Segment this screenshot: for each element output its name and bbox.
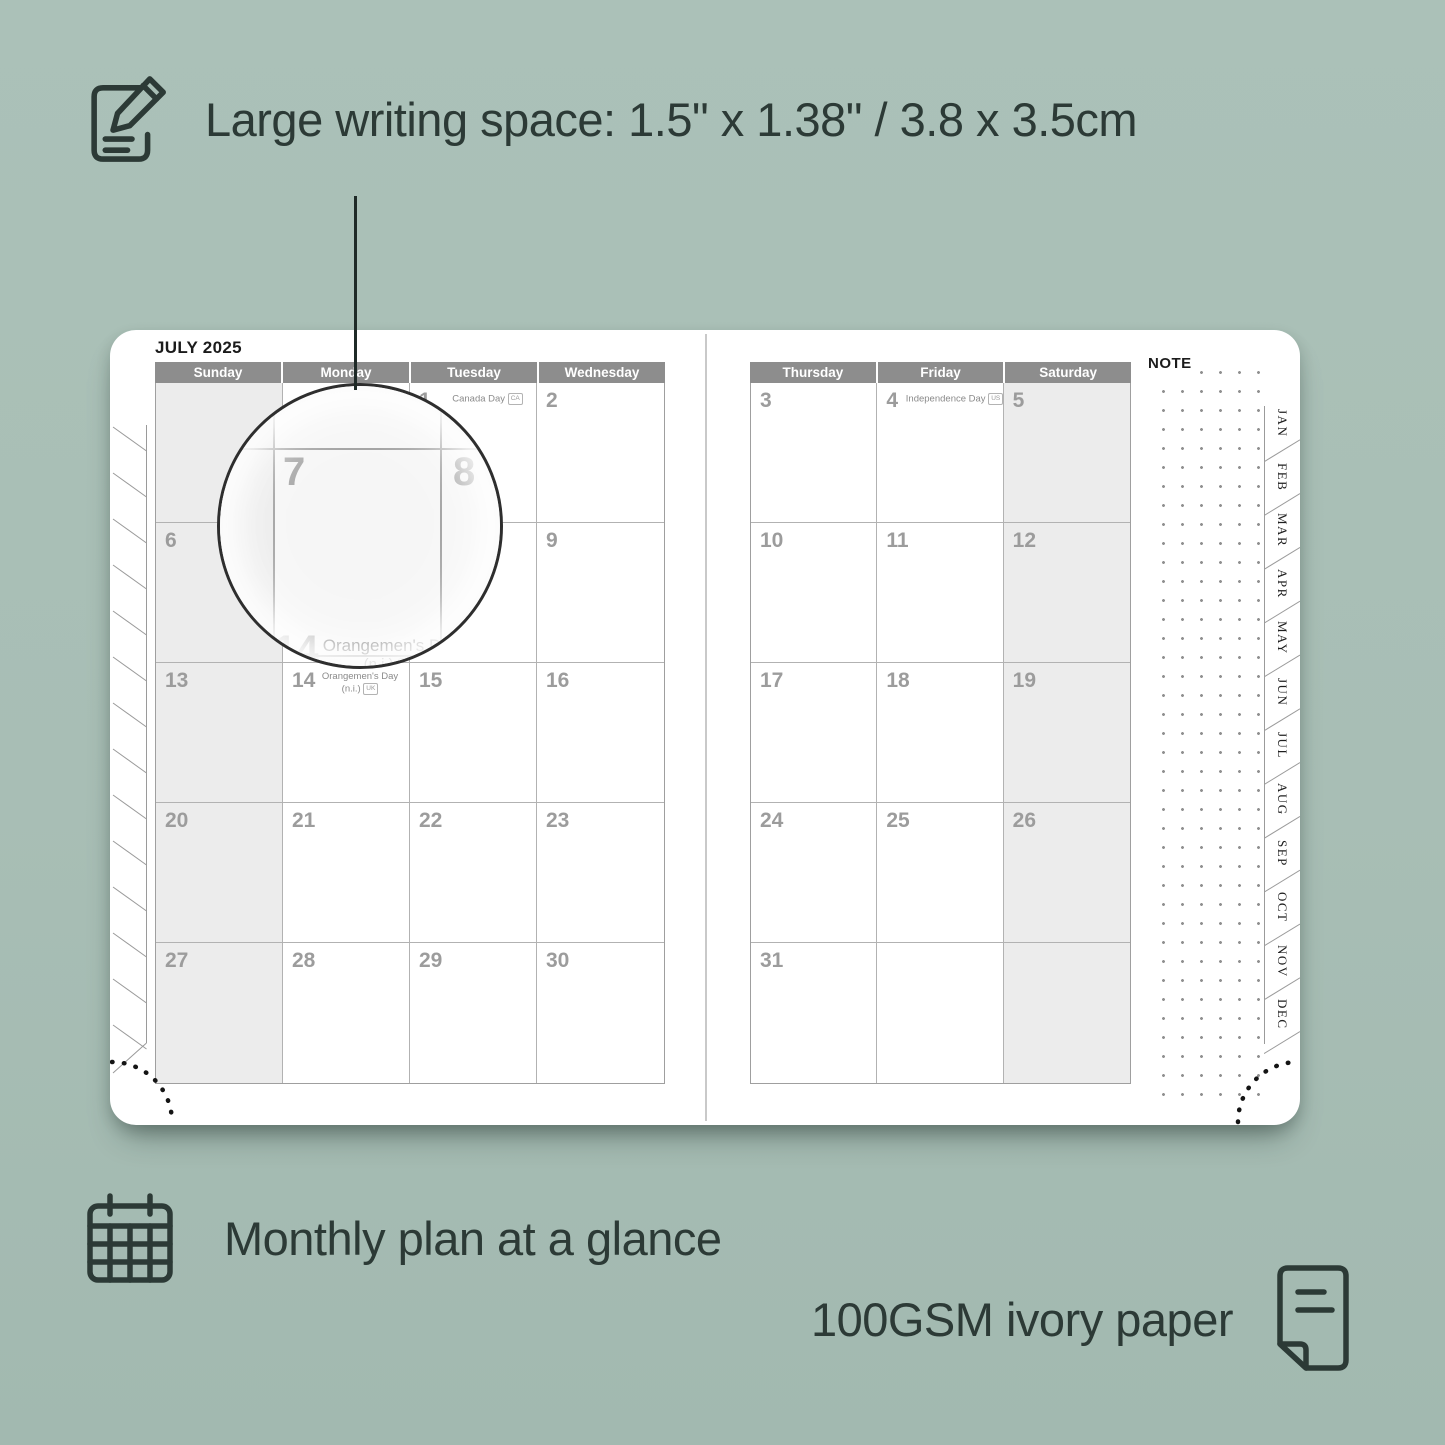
planner-product-image: Large writing space: 1.5" x 1.38" / 3.8 … [0,0,1445,1445]
calendar-cell: 23 [537,803,664,943]
calendar-cell: 29 [410,943,537,1083]
month-tab-jul: JUL [1264,719,1300,773]
spread-spine [705,334,707,1121]
calendar-cell: 30 [537,943,664,1083]
month-tab-dec: DEC [1264,988,1300,1042]
month-tab-oct: OCT [1264,880,1300,934]
paper-sheet-icon [1266,1262,1352,1374]
day-number: 13 [165,669,188,693]
month-tab-may: MAY [1264,611,1300,665]
day-number: 12 [1013,529,1036,553]
calendar-cell: 16 [537,663,664,803]
day-number: 15 [419,669,442,693]
month-tab-jan: JAN [1264,396,1300,450]
magnified-holiday-label: Orangemen's Day (n.i.) UK [310,635,472,669]
holiday-label: Orangemen's Day(n.i.) UK [313,671,407,696]
calendar-cell: 24 [751,803,877,943]
feature-writing-space: Large writing space: 1.5" x 1.38" / 3.8 … [83,70,1137,168]
country-badge: US [988,393,1003,405]
calendar-cell: 14Orangemen's Day(n.i.) UK [283,663,410,803]
month-tab-jun: JUN [1264,665,1300,719]
day-number: 3 [760,389,772,413]
calendar-cell: 4Independence Day US [877,383,1003,523]
magnified-weekend-column [220,386,273,666]
day-number: 26 [1013,809,1036,833]
notepad-pencil-icon [83,70,181,168]
day-number: 16 [546,669,569,693]
holiday-label: Independence Day US [909,393,999,405]
day-number: 5 [1013,389,1025,413]
day-number: 4 [886,389,898,413]
calendar-cell: 19 [1004,663,1130,803]
calendar-cell: 31 [751,943,877,1083]
magnified-grid-line [220,448,500,450]
day-number: 18 [886,669,909,693]
day-header: Monday [283,362,409,383]
month-tab-mar: MAR [1264,504,1300,558]
calendar-cell [1004,943,1130,1083]
callout-connector-line [354,196,357,390]
calendar-cell: 2 [537,383,664,523]
calendar-cell: 20 [156,803,283,943]
day-number: 29 [419,949,442,973]
calendar-cell: 27 [156,943,283,1083]
day-number: 28 [292,949,315,973]
month-title: JULY 2025 [155,338,242,358]
day-header: Friday [878,362,1004,383]
country-badge: UK [363,683,378,695]
calendar-cell: 15 [410,663,537,803]
day-number: 21 [292,809,315,833]
day-number: 31 [760,949,783,973]
day-number: 20 [165,809,188,833]
calendar-cell: 18 [877,663,1003,803]
day-header: Tuesday [411,362,537,383]
day-header: Sunday [155,362,281,383]
day-number: 22 [419,809,442,833]
feature-monthly-plan: Monthly plan at a glance [82,1190,722,1286]
feature-monthly-plan-label: Monthly plan at a glance [224,1211,722,1266]
calendar-cell: 28 [283,943,410,1083]
calendar-cell: 26 [1004,803,1130,943]
day-number: 9 [546,529,558,553]
calendar-cell: 21 [283,803,410,943]
calendar-cell: 25 [877,803,1003,943]
month-tab-sep: SEP [1264,826,1300,880]
day-number: 2 [546,389,558,413]
calendar-cell: 17 [751,663,877,803]
day-number: 24 [760,809,783,833]
calendar-cell: 13 [156,663,283,803]
calendar-cell: 11 [877,523,1003,663]
calendar-right-page: ThursdayFridaySaturday34Independence Day… [750,362,1131,1084]
day-number: 11 [886,529,908,553]
month-tab-aug: AUG [1264,773,1300,827]
calendar-cell: 9 [537,523,664,663]
day-number: 17 [760,669,783,693]
magnifier-circle: 7 8 14 Orangemen's Day (n.i.) UK [217,383,503,669]
calendar-cell: 5 [1004,383,1130,523]
calendar-grid-icon [82,1190,178,1286]
month-tab-feb: FEB [1264,450,1300,504]
day-number: 10 [760,529,783,553]
day-number: 19 [1013,669,1036,693]
calendar-cell: 10 [751,523,877,663]
magnified-grid-line [273,386,275,666]
day-number: 30 [546,949,569,973]
calendar-cell: 12 [1004,523,1130,663]
month-tab-strip: JANFEBMARAPRMAYJUNJULAUGSEPOCTNOVDEC [1264,396,1300,1056]
day-number: 25 [886,809,909,833]
day-number: 23 [546,809,569,833]
calendar-cell [877,943,1003,1083]
calendar-cell: 22 [410,803,537,943]
day-header: Thursday [750,362,876,383]
day-header: Wednesday [539,362,665,383]
day-number: 14 [292,669,315,693]
day-number: 6 [165,529,177,553]
country-badge: CA [508,393,523,405]
note-label: NOTE [1148,355,1197,374]
month-tab-nov: NOV [1264,934,1300,988]
feature-paper-label: 100GSM ivory paper [811,1292,1233,1347]
left-page-edge-tabs [112,425,150,1077]
magnified-day-number: 7 [283,450,305,495]
month-tab-apr: APR [1264,557,1300,611]
note-dot-grid: NOTE [1148,358,1270,1110]
feature-writing-space-label: Large writing space: 1.5" x 1.38" / 3.8 … [205,92,1137,147]
day-header: Saturday [1005,362,1131,383]
day-number: 27 [165,949,188,973]
holiday-label: Canada Day CA [442,393,533,405]
magnified-day-number: 8 [453,450,475,495]
magnified-grid-line [440,386,442,666]
calendar-cell: 3 [751,383,877,523]
magnified-holiday-line1: Orangemen's Day [310,635,472,656]
